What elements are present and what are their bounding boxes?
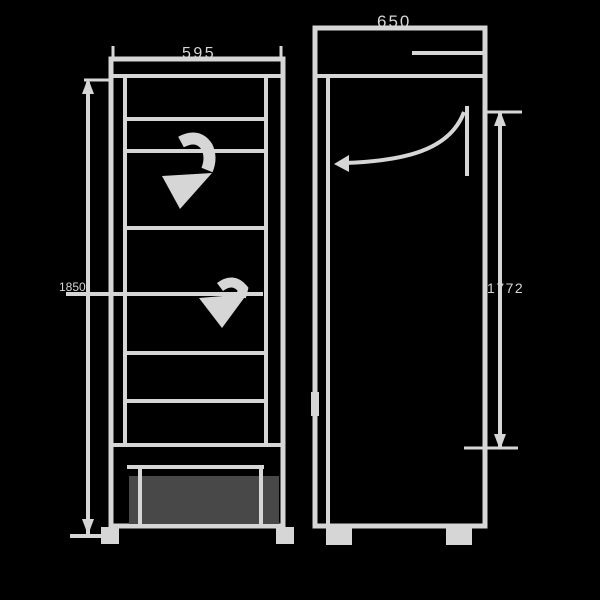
svg-text:650: 650 xyxy=(377,12,411,31)
svg-text:1850: 1850 xyxy=(59,280,86,294)
svg-text:1772: 1772 xyxy=(487,280,524,296)
svg-text:595: 595 xyxy=(182,45,216,62)
